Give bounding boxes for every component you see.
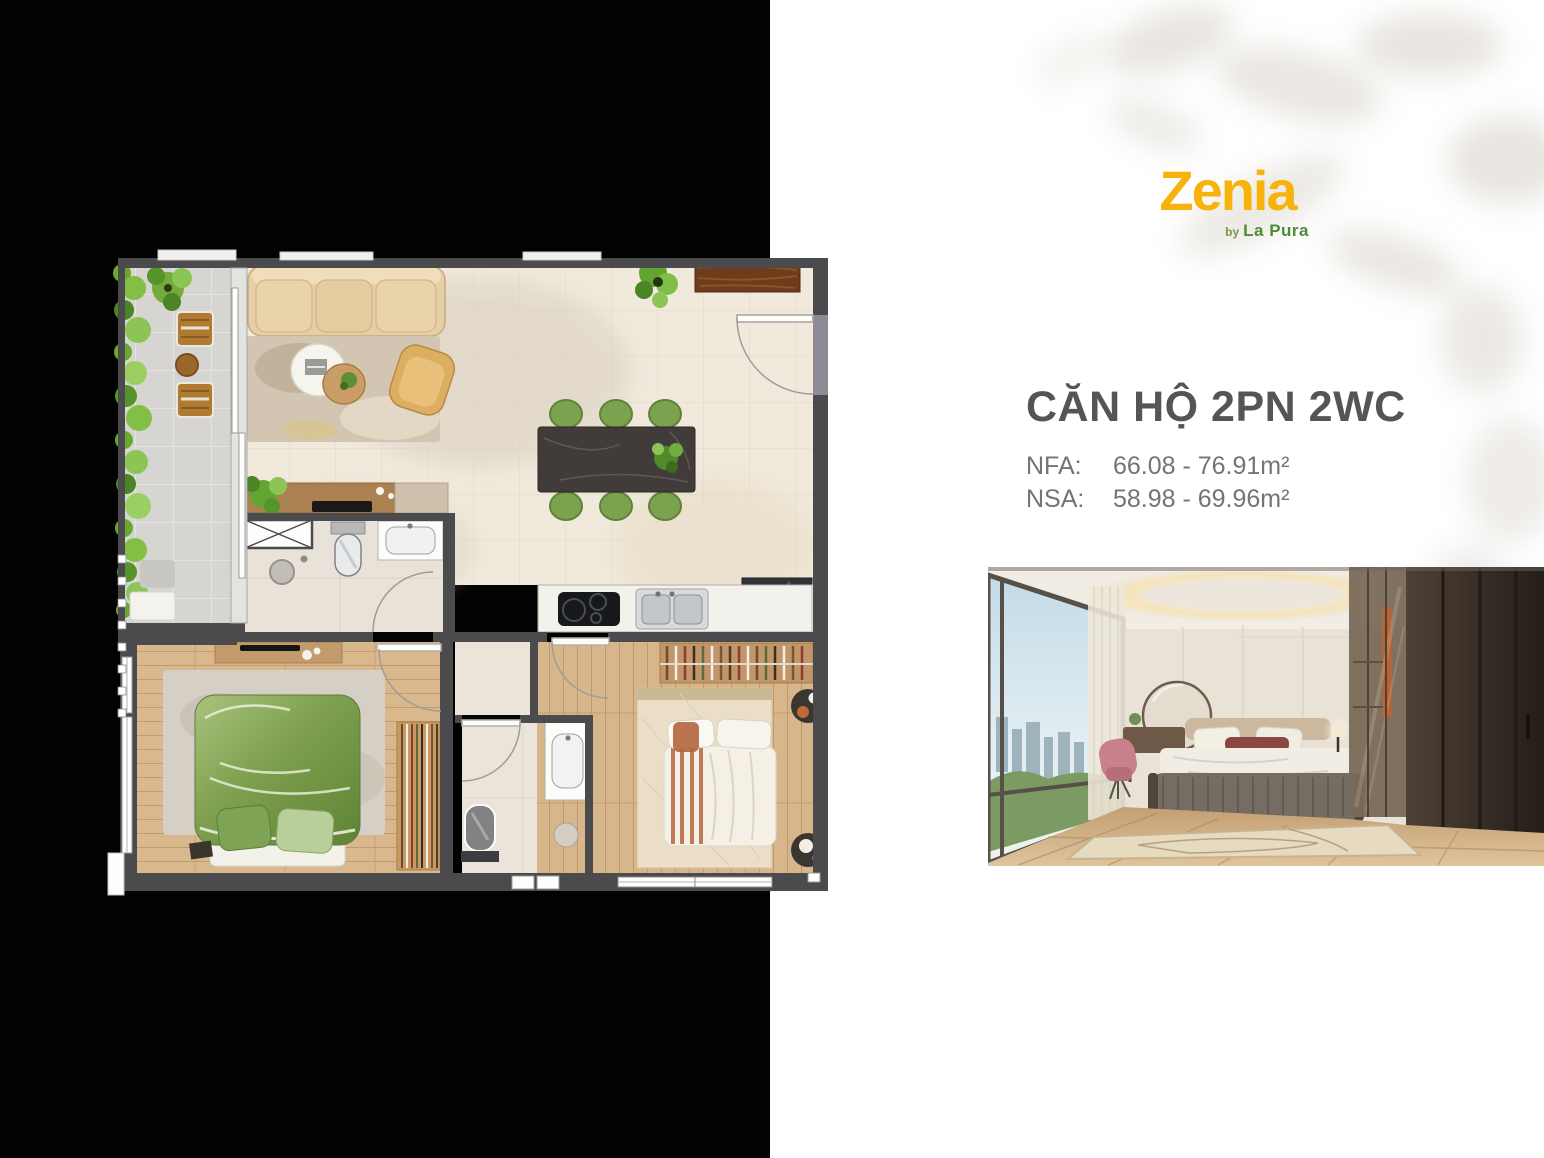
kitchen-sink bbox=[636, 589, 708, 629]
brand-byline: byLa Pura bbox=[1140, 221, 1315, 241]
spec-row-nsa: NSA: 58.98 - 69.96m² bbox=[1026, 483, 1506, 516]
unit-specs: NFA: 66.08 - 76.91m² NSA: 58.98 - 69.96m… bbox=[1026, 450, 1506, 516]
floor-plan bbox=[60, 218, 850, 908]
balcony-chair bbox=[177, 312, 213, 346]
brand-company: La Pura bbox=[1243, 221, 1309, 240]
balcony-chair bbox=[177, 383, 213, 417]
spec-row-nfa: NFA: 66.08 - 76.91m² bbox=[1026, 450, 1506, 483]
sliding-glass-door bbox=[231, 268, 247, 623]
vanity-2 bbox=[545, 722, 590, 800]
spec-value: 66.08 - 76.91m² bbox=[1113, 452, 1290, 480]
spec-label: NSA: bbox=[1026, 483, 1106, 516]
glass-wardrobe bbox=[1349, 567, 1406, 817]
spec-value: 58.98 - 69.96m² bbox=[1113, 485, 1290, 513]
green-bed bbox=[195, 695, 360, 866]
brand-logo: Zenia byLa Pura bbox=[1140, 163, 1315, 241]
spec-label: NFA: bbox=[1026, 450, 1106, 483]
toilet bbox=[331, 522, 365, 576]
wash-basin bbox=[378, 521, 443, 560]
sofa bbox=[248, 266, 445, 336]
unit-title: CĂN HỘ 2PN 2WC bbox=[1026, 383, 1506, 432]
shower-stool bbox=[554, 823, 578, 847]
dark-wardrobe bbox=[1406, 567, 1544, 866]
brand-name: Zenia bbox=[1140, 163, 1315, 219]
balcony-side-table bbox=[176, 354, 198, 376]
hallway-floor bbox=[455, 642, 537, 715]
wardrobe-2 bbox=[660, 643, 813, 683]
double-bed bbox=[664, 718, 776, 846]
bedroom-photo bbox=[988, 567, 1544, 866]
wardrobe-1 bbox=[397, 722, 440, 870]
unit-info: CĂN HỘ 2PN 2WC NFA: 66.08 - 76.91m² NSA:… bbox=[1026, 383, 1506, 516]
tv-console bbox=[215, 642, 342, 663]
vanity-plant bbox=[1129, 713, 1141, 725]
photo-top-edge bbox=[988, 567, 1544, 571]
kitchen bbox=[538, 578, 812, 632]
brand-by-prefix: by bbox=[1225, 225, 1239, 239]
utility-bench bbox=[140, 560, 175, 588]
sheer-curtain bbox=[1088, 585, 1126, 820]
bedside-tray bbox=[189, 841, 213, 860]
toilet-2 bbox=[461, 805, 499, 862]
brochure-page: Zenia byLa Pura CĂN HỘ 2PN 2WC NFA: 66.0… bbox=[0, 0, 1544, 1158]
floor-mat bbox=[130, 592, 175, 620]
dining-set bbox=[538, 400, 695, 520]
shaft-box bbox=[245, 520, 312, 548]
cooktop bbox=[558, 592, 620, 626]
